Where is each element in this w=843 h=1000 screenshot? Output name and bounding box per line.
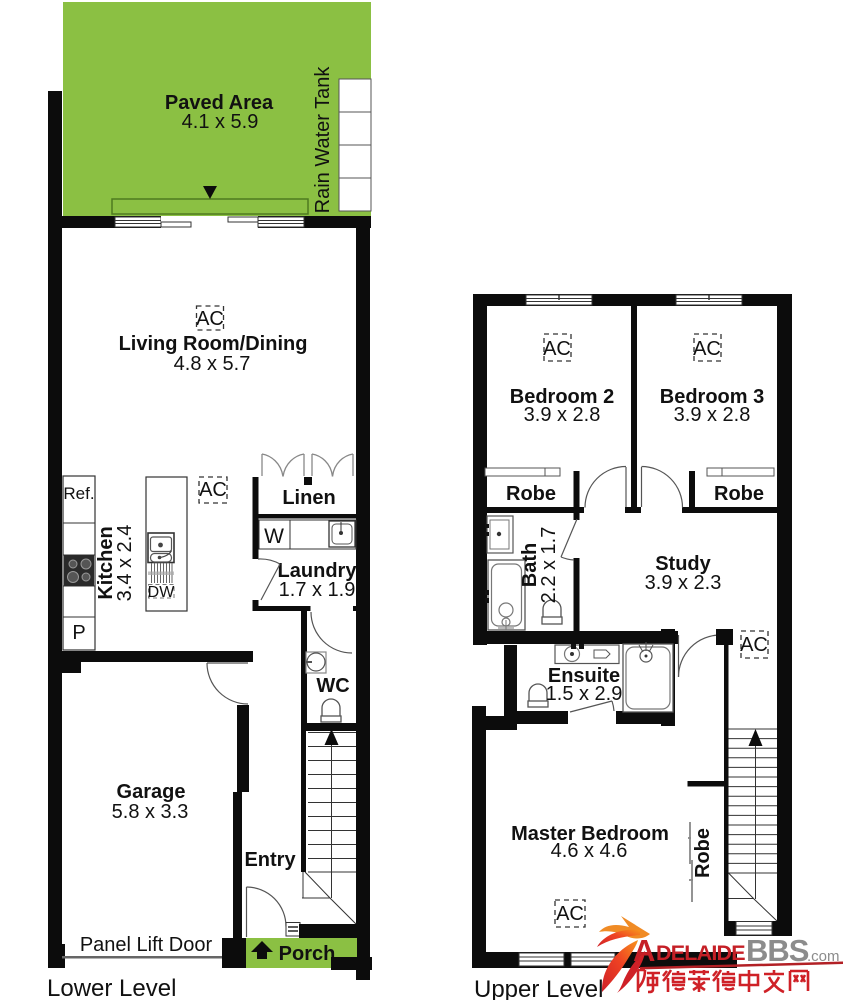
- svg-text:Robe: Robe: [692, 828, 714, 878]
- svg-text:Linen: Linen: [282, 487, 335, 509]
- svg-text:4.6 x 4.6: 4.6 x 4.6: [551, 840, 628, 862]
- svg-text:Robe: Robe: [714, 483, 764, 505]
- svg-text:Robe: Robe: [506, 483, 556, 505]
- svg-text:Rain Water Tank: Rain Water Tank: [312, 66, 334, 214]
- svg-text:AC: AC: [556, 903, 584, 925]
- svg-text:Ref.: Ref.: [63, 484, 94, 503]
- svg-text:AC: AC: [740, 634, 768, 656]
- svg-text:WC: WC: [316, 675, 349, 697]
- svg-text:DELAIDE: DELAIDE: [656, 941, 745, 965]
- svg-text:3.9 x 2.8: 3.9 x 2.8: [674, 404, 751, 426]
- svg-text:Panel Lift Door: Panel Lift Door: [80, 934, 213, 956]
- svg-text:AC: AC: [199, 479, 227, 501]
- svg-text:1.5 x 2.9: 1.5 x 2.9: [546, 683, 623, 705]
- svg-text:5.8 x 3.3: 5.8 x 3.3: [112, 801, 189, 823]
- svg-text:2.2 x 1.7: 2.2 x 1.7: [538, 527, 560, 604]
- svg-text:AC: AC: [543, 338, 571, 360]
- svg-text:3.9 x 2.3: 3.9 x 2.3: [645, 572, 722, 594]
- svg-text:Porch: Porch: [279, 943, 336, 965]
- svg-text:Living Room/Dining: Living Room/Dining: [119, 333, 308, 355]
- svg-text:Upper Level: Upper Level: [474, 976, 603, 1000]
- svg-text:AC: AC: [693, 338, 721, 360]
- svg-text:4.1 x 5.9: 4.1 x 5.9: [182, 111, 259, 133]
- svg-text:3.9 x 2.8: 3.9 x 2.8: [524, 404, 601, 426]
- svg-text:4.8 x 5.7: 4.8 x 5.7: [174, 353, 251, 375]
- svg-text:1.7 x 1.9: 1.7 x 1.9: [279, 579, 356, 601]
- svg-text:A: A: [633, 933, 655, 968]
- svg-text:DW: DW: [148, 584, 176, 601]
- svg-text:AC: AC: [196, 308, 224, 330]
- svg-text:Entry: Entry: [244, 849, 296, 871]
- svg-text:W: W: [264, 525, 284, 548]
- svg-text:Garage: Garage: [117, 781, 186, 803]
- svg-text:P: P: [72, 622, 85, 644]
- svg-text:3.4 x 2.4: 3.4 x 2.4: [114, 525, 136, 602]
- svg-text:Lower Level: Lower Level: [47, 975, 176, 1000]
